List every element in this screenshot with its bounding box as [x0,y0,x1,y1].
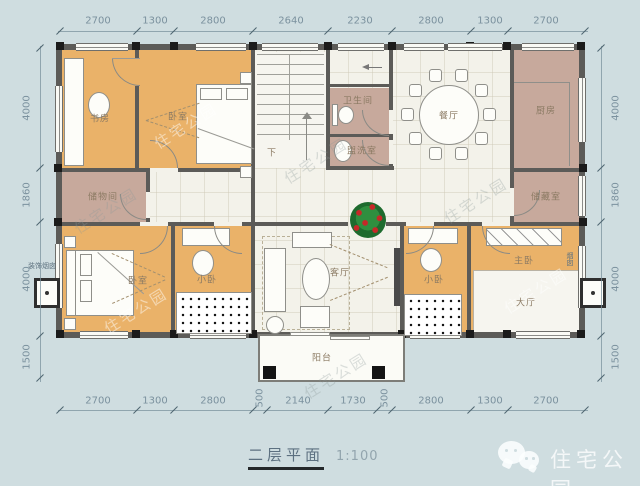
dim-bottom-7: 2800 [418,396,443,407]
pillow [80,254,92,276]
door-leaf [112,58,140,59]
wechat-eye [525,457,528,460]
chimney-dot [591,291,595,295]
window [76,43,128,51]
dimension-line-left [40,46,41,382]
dim-top-2: 2800 [200,16,225,27]
stair-rail [289,54,290,140]
dim-bottom-2: 2800 [200,396,225,407]
dim-top-3: 2640 [278,16,303,27]
column [503,330,511,338]
window [196,43,246,51]
dim-bottom-5: 1730 [340,396,365,407]
dim-top-5: 2800 [418,16,443,27]
kitchen-counter [514,82,570,83]
dim-bottom-3: 500 [255,388,266,407]
dim-bottom-0: 2700 [85,396,110,407]
label-dining: 餐厅 [439,109,459,122]
stair-treads [257,54,324,140]
pillow [226,88,248,100]
cabinet [292,232,332,248]
wall [510,168,585,172]
column [503,42,511,50]
pillow [200,88,222,100]
dim-right-0: 4000 [611,95,622,120]
coffee-table [302,258,330,300]
brand-name: 住宅公园 [550,444,640,486]
armchair [300,306,330,328]
label-storage: 储物间 [88,190,118,203]
dining-chair [455,147,468,160]
column [324,42,332,50]
wechat-icon [498,438,544,476]
wechat-eye [532,457,535,460]
column [249,42,257,50]
window [448,43,502,51]
dim-top-0: 2700 [85,16,110,27]
dining-chair [455,69,468,82]
tv [394,248,400,306]
stair-arrow-head [302,112,312,119]
column [577,330,585,338]
dining-chair [475,132,488,145]
label-small-bedroom-right: 小卧 [424,273,444,286]
dim-top-7: 2700 [533,16,558,27]
dim-bottom-1: 1300 [142,396,167,407]
label-bedroom-top: 卧室 [168,110,188,123]
window [404,43,444,51]
plan-title-text: 二层平面 [248,446,324,470]
wall [326,50,330,166]
column [466,330,474,338]
dim-bottom-8: 1300 [477,396,502,407]
plant [350,202,386,238]
nightstand [64,318,76,330]
chair [420,248,442,272]
dim-left-2: 4000 [22,266,33,291]
column [170,42,178,50]
entry-arrow-line [368,67,382,68]
balcony-column [372,366,385,379]
column [132,42,140,50]
balcony-column [263,366,276,379]
bed-patterned [176,292,252,334]
headboard [66,250,76,316]
dining-chair [429,147,442,160]
window [578,78,586,142]
label-right-chimney: 烟囱 [565,252,575,266]
kitchen-counter [569,82,570,166]
door-opening [389,140,393,164]
dim-left-0: 4000 [22,95,33,120]
door-opening [150,168,178,172]
dimension-line-right [601,46,602,382]
sliding-door-panel [330,336,370,340]
study-desk [64,58,84,166]
dim-top-4: 2230 [347,16,372,27]
label-kitchen: 厨房 [536,104,556,117]
dim-left-1: 1860 [22,182,33,207]
plan-title: 二层平面1:100 [248,444,378,465]
dining-chair [401,108,414,121]
dim-bottom-6: 500 [380,388,391,407]
dim-left-3: 1500 [22,344,33,369]
nightstand [240,72,252,84]
label-master-bedroom: 主卧 [514,254,534,267]
dining-chair [409,84,422,97]
label-study: 书房 [90,112,110,125]
wall [56,222,348,226]
bed [66,250,134,316]
nightstand [240,166,252,178]
dining-chair [429,69,442,82]
dim-bottom-4: 2140 [285,396,310,407]
bed-patterned [404,294,462,336]
window [338,43,384,51]
sliding-door-panel [290,332,330,336]
label-bathroom: 卫生间 [343,94,373,107]
stair-arrow-line [306,118,307,160]
column [54,218,62,226]
side-table [266,316,284,334]
dining-chair [483,108,496,121]
sofa [264,248,286,312]
column [132,330,140,338]
plan-scale: 1:100 [336,449,378,464]
dim-right-1: 1860 [611,182,622,207]
pillow [80,280,92,302]
window [262,43,318,51]
column [56,42,64,50]
label-small-bedroom-left: 小卧 [197,273,217,286]
door-opening [389,110,393,134]
wall [467,226,471,332]
label-hall: 大厅 [516,296,536,309]
dim-top-6: 1300 [477,16,502,27]
entry-arrow-head [362,64,369,70]
dining-chair [475,84,488,97]
column [579,164,587,172]
dim-top-1: 1300 [142,16,167,27]
door-opening [146,192,150,218]
dim-right-2: 4000 [611,266,622,291]
wall [171,226,175,332]
wechat-eye [505,449,508,452]
wall [326,166,394,170]
toilet-bowl [338,106,354,124]
window [55,86,63,152]
dim-right-3: 1500 [611,344,622,369]
column [56,330,64,338]
chimney-dot [45,291,49,295]
dining-chair [409,132,422,145]
column [579,218,587,226]
column [577,42,585,50]
label-stairs-down: 下 [267,146,277,159]
wall [326,84,393,87]
window [516,331,570,339]
window [80,331,128,339]
dim-bottom-9: 2700 [533,396,558,407]
label-washroom: 盥洗室 [347,144,377,157]
column [388,42,396,50]
nightstand [64,236,76,248]
window [522,43,574,51]
wechat-eye [514,449,517,452]
column [54,164,62,172]
floor-plan-image: 书房 卧室 储物间 卫生间 盥洗室 餐厅 厨房 储藏室 卧室 小卧 客厅 小卧 … [0,0,640,486]
label-bedroom-left: 卧室 [128,274,148,287]
window [578,176,586,216]
label-pantry: 储藏室 [531,190,561,203]
label-living: 客厅 [330,266,350,279]
label-balcony: 阳台 [312,351,332,364]
